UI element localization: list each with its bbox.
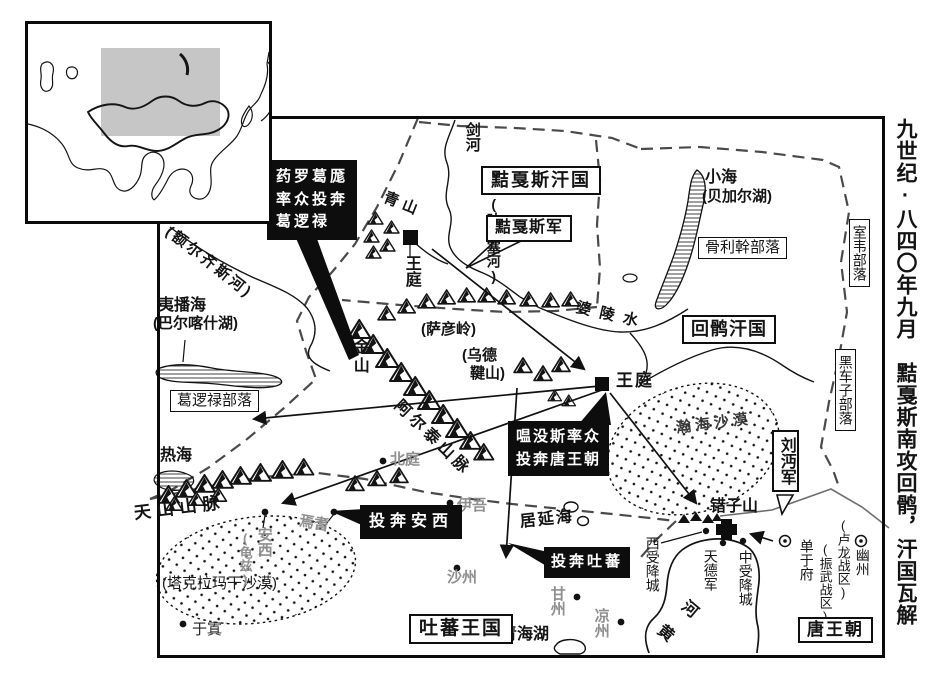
label-uyghur-khanate: 回鹘汗国 — [682, 315, 776, 344]
city-anxi-alt: (龟兹) — [238, 531, 252, 587]
tail-flee-tubo — [508, 543, 548, 567]
river-east — [640, 347, 814, 384]
city-beiting: 北庭 — [390, 452, 420, 468]
event-wenmosi-flees: 嗢没斯率众 投奔唐王朝 — [508, 421, 609, 476]
city-tiandejun: 天德军 — [703, 549, 718, 591]
label-kirghiz-khanate: 黠戛斯汗国 — [481, 166, 601, 195]
river-yenisei — [445, 120, 520, 297]
dot-yanqi — [331, 509, 338, 516]
arrow-flee-karluk — [254, 386, 600, 419]
dot-yutian — [180, 621, 187, 628]
dot-anxi — [262, 509, 269, 516]
city-youzhou: 幽州 — [855, 548, 870, 576]
historical-map-page: 九世纪·八四〇年九月 黠戛斯南攻回鹘，汗国瓦解 黠戛斯汗国 黠戛斯军 骨利幹部落… — [0, 0, 943, 679]
dot-tiandejun — [720, 540, 726, 546]
inset-highlight-region — [101, 48, 220, 136]
label-rehai-lake: 热海 — [160, 448, 192, 465]
label-guligan-tribe: 骨利幹部落 — [698, 237, 787, 259]
inset-overview-map — [25, 21, 272, 224]
label-sayan-range: (萨彦岭) — [421, 322, 476, 338]
label-kirghiz-court: 王庭 — [402, 255, 419, 287]
label-baikal-xiaohai: 小海 — [705, 170, 737, 187]
event-yaoluoge-line1: 药罗葛厖 — [276, 166, 348, 189]
label-heichezi-tribe: 黑车子部落 — [835, 349, 856, 431]
label-cuozishan: 错子山 — [710, 499, 758, 516]
city-anxi: 安西 — [256, 527, 272, 557]
dot-liangzhou — [618, 619, 625, 626]
label-wudejian-2: 鞬山) — [470, 366, 505, 382]
label-baikal-alt: (贝加尔湖) — [702, 189, 772, 205]
event-yaoluoge-line2: 率众投奔 — [276, 189, 348, 212]
map-title: 九世纪·八四〇年九月 黠戛斯南攻回鹘，汗国瓦解 — [890, 118, 920, 663]
marker-uyghur-court — [595, 377, 609, 391]
dot-ganzhou — [574, 594, 581, 601]
city-youzhou-alt: (卢龙战区) — [836, 518, 850, 600]
lake-small-ne — [623, 274, 637, 282]
inset-graphics — [28, 24, 269, 221]
label-wudejian-1: (乌德 — [462, 348, 497, 364]
label-karluk-tribe: 葛逻禄部落 — [170, 390, 259, 412]
city-xishouxiangcheng: 西受降城 — [645, 536, 660, 592]
city-yutian: 于寘 — [192, 622, 222, 638]
label-shiwei-tribe: 室韦部落 — [849, 219, 870, 287]
event-flee-anxi: 投奔安西 — [360, 505, 462, 539]
event-wenmosi-line1: 嗢没斯率众 — [516, 426, 601, 449]
arrow-zhenwu — [751, 534, 773, 541]
marker-khan-refuge — [716, 519, 737, 540]
lake-qinghai — [554, 640, 585, 654]
event-yaoluoge-line3: 葛逻禄 — [276, 211, 348, 234]
label-taklamakan-desert: (塔克拉玛干沙漠) — [162, 576, 277, 592]
label-jinshan: 金山 — [350, 338, 367, 376]
dot-zhongshouxiang — [740, 538, 746, 544]
city-chanyufu: 单于府 — [799, 539, 814, 581]
label-tibet-kingdom: 吐蕃王国 — [409, 614, 513, 644]
lake-balkhash — [156, 365, 282, 388]
label-liu-mian-army: 刘沔军 — [772, 430, 799, 492]
label-kirghiz-army: 黠戛斯军 — [486, 215, 572, 242]
leader-yibohai — [183, 340, 185, 362]
label-uyghur-court: 王庭 — [616, 372, 654, 390]
dot-xishouxiang — [703, 528, 709, 534]
city-liangzhou: 凉州 — [593, 608, 609, 638]
event-flee-tibet: 投奔吐蕃 — [544, 547, 630, 578]
lake-juyan-2 — [578, 517, 589, 526]
dot-beiting — [380, 458, 387, 465]
label-balkhash-yibohai: 夷播海 — [158, 298, 206, 315]
marker-kirghiz-court — [403, 230, 418, 245]
city-ganzhou: 甘州 — [549, 586, 565, 616]
label-jian-river: 剑河 — [464, 122, 480, 152]
label-balkhash-alt: (巴尔喀什湖) — [153, 316, 238, 332]
city-zhongshouxiangcheng: 中受降城 — [738, 550, 753, 606]
tail-liu-mian — [777, 495, 793, 514]
desert-taklamakan — [150, 505, 361, 635]
city-shazhou: 沙州 — [447, 570, 477, 586]
event-wenmosi-line2: 投奔唐王朝 — [516, 449, 601, 472]
label-tang-dynasty: 唐王朝 — [798, 617, 873, 643]
event-yaoluoge-flees: 药罗葛厖 率众投奔 葛逻禄 — [267, 160, 357, 240]
leader-xishouxiang — [661, 532, 702, 543]
city-chanyufu-alt: (振武战区) — [818, 542, 832, 624]
